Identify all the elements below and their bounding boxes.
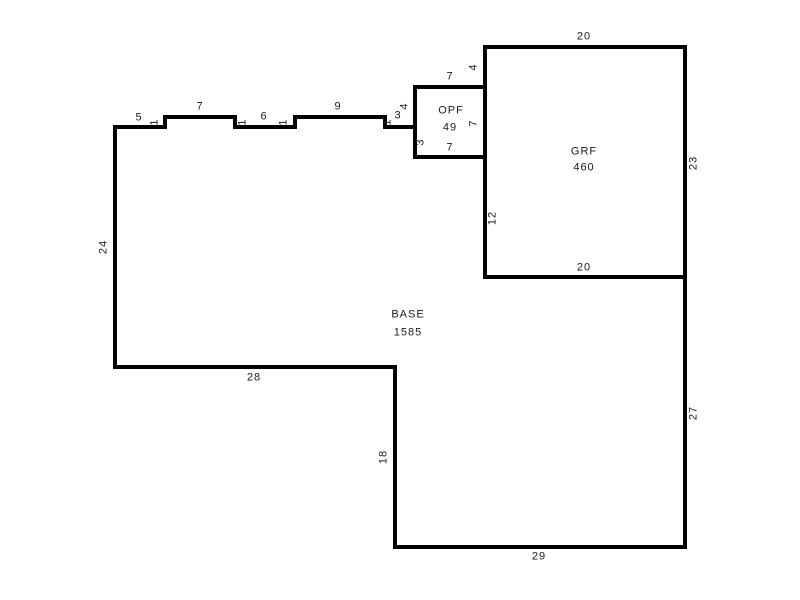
area-value-grf: 460 <box>573 163 594 174</box>
floor-plan-sketch: 517161913437477202320122428182927BASE158… <box>0 0 800 600</box>
dim-label: 5 <box>135 113 142 124</box>
dim-label: 12 <box>488 211 499 225</box>
dim-label: 7 <box>446 72 453 83</box>
dim-label: 7 <box>469 119 480 126</box>
dim-label: 28 <box>247 373 261 384</box>
dim-label: 1 <box>279 118 290 125</box>
dim-label: 9 <box>334 102 341 113</box>
floorplan-walls <box>0 0 800 600</box>
dim-label: 7 <box>196 102 203 113</box>
dim-label: 1 <box>383 118 394 125</box>
area-name-opf: OPF <box>438 106 464 117</box>
area-value-base: 1585 <box>394 328 422 339</box>
dim-label: 20 <box>577 263 591 274</box>
dim-label: 1 <box>238 118 249 125</box>
dim-label: 20 <box>577 32 591 43</box>
dim-label: 3 <box>416 138 427 145</box>
dim-label: 4 <box>400 102 411 109</box>
dim-label: 3 <box>394 111 401 122</box>
dim-label: 1 <box>150 118 161 125</box>
dim-label: 6 <box>260 112 267 123</box>
area-value-opf: 49 <box>443 123 457 134</box>
dim-label: 27 <box>689 406 700 420</box>
dim-label: 24 <box>99 240 110 254</box>
dim-label: 4 <box>469 63 480 70</box>
area-name-base: BASE <box>391 310 424 321</box>
area-name-grf: GRF <box>571 147 597 158</box>
dim-label: 23 <box>689 156 700 170</box>
dim-label: 7 <box>446 143 453 154</box>
dim-label: 18 <box>379 450 390 464</box>
dim-label: 29 <box>532 552 546 563</box>
